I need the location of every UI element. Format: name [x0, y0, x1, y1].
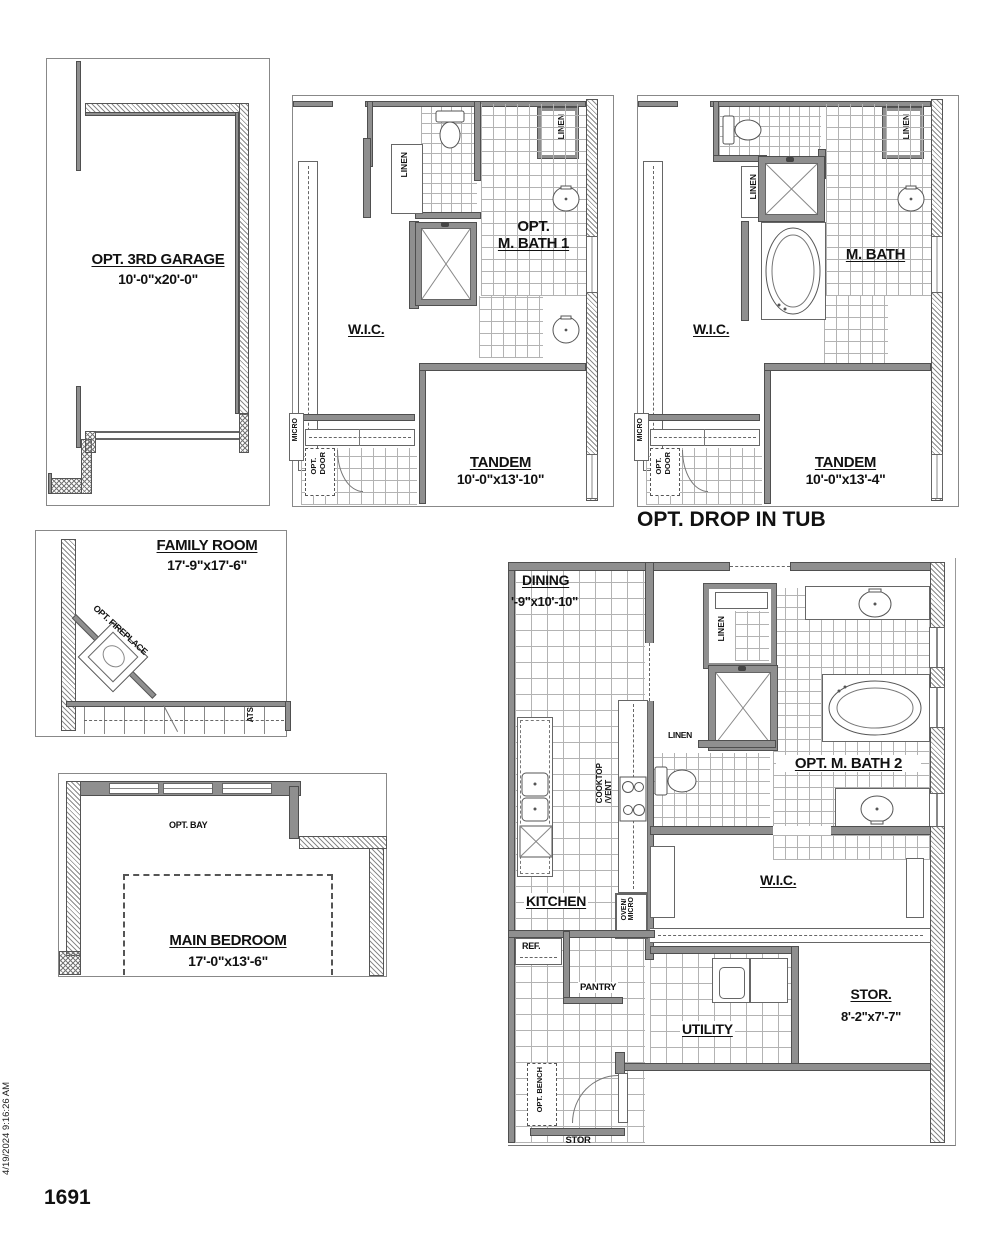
- plan-opt-3rd-garage: OPT. 3RD GARAGE 10'-0"x20'-0": [46, 58, 270, 506]
- door-leaf: [618, 1073, 628, 1123]
- wall: [615, 1052, 625, 1074]
- wall: [646, 414, 760, 421]
- wall: [563, 997, 623, 1004]
- wall: [293, 101, 333, 107]
- floor-plan-sheet: OPT. 3RD GARAGE 10'-0"x20'-0" LINEN LINE…: [0, 0, 1000, 1250]
- window: [929, 687, 945, 728]
- pantry-label: PANTRY: [578, 982, 618, 993]
- wall: [713, 101, 719, 161]
- exterior-wall-crosshatch: [59, 951, 81, 975]
- wall: [620, 1063, 931, 1071]
- wall: [650, 946, 798, 954]
- wall: [508, 562, 515, 1143]
- ref-label: REF.: [522, 941, 540, 951]
- toilet-icon: [434, 110, 466, 152]
- exterior-wall-hatch: [239, 103, 249, 415]
- garage-door-pier: [85, 431, 96, 453]
- opening: [773, 826, 831, 835]
- tub-icon: [765, 227, 822, 315]
- garage-title: OPT. 3RD GARAGE: [87, 251, 229, 268]
- bath1-title-line2: M. BATH 1: [481, 235, 586, 252]
- toilet-icon: [722, 114, 764, 146]
- exterior-wall-hatch: [586, 99, 598, 501]
- counter-centerline: [309, 437, 411, 438]
- linen-hall-label: LINEN: [666, 730, 694, 740]
- plan-family-room: FAMILY ROOM 17'-9"x17'-6" OPT. FIREPLACE…: [35, 530, 287, 737]
- closet-shelves: [650, 846, 675, 918]
- shelf-centerline: [653, 166, 654, 466]
- opening-dashed: [730, 566, 790, 567]
- counter-centerline: [654, 437, 756, 438]
- drop-in-tub-caption: OPT. DROP IN TUB: [637, 508, 826, 532]
- shower-x-icon: [715, 672, 771, 744]
- shower-x-icon: [421, 228, 471, 300]
- print-timestamp: 4/19/2024 9:16:26 AM: [1, 1082, 12, 1175]
- utility-label: UTILITY: [680, 1021, 735, 1037]
- wall: [48, 473, 52, 494]
- bath1-title: OPT. M. BATH 1: [481, 218, 586, 252]
- plan-m-bath-drop-in-tub: LINEN LINEN M. BATH W.I.C.: [637, 95, 959, 507]
- plan-main-area: DINING '-9"x10'-10" LINEN LINEN: [508, 558, 956, 1146]
- opt-door-label: OPT.DOOR: [309, 452, 327, 475]
- wall: [741, 221, 749, 321]
- washer-drum: [719, 967, 745, 999]
- wall: [790, 562, 931, 571]
- shower-x-icon: [765, 163, 818, 215]
- wall: [508, 562, 730, 571]
- bath2-title: OPT. M. BATH 2: [776, 755, 921, 772]
- dining-label: DINING: [522, 572, 569, 588]
- bath-floor: [479, 296, 543, 358]
- cooktop-label: COOKTOP/VENT: [595, 763, 613, 803]
- dishwasher-icon: [519, 825, 553, 858]
- wall: [474, 101, 481, 181]
- window: [931, 236, 943, 293]
- washer: [712, 958, 750, 1003]
- kitchen-label: KITCHEN: [524, 893, 588, 909]
- sink-icon: [896, 186, 926, 212]
- tandem-label: TANDEM 10'-0"x13'-4": [778, 454, 913, 487]
- wall: [415, 212, 481, 219]
- window: [929, 627, 945, 668]
- wall: [419, 363, 586, 371]
- exterior-wall-hatch: [66, 781, 81, 956]
- window: [109, 783, 159, 794]
- garage-door: [96, 431, 239, 440]
- bath1-title-line1: OPT.: [481, 218, 586, 235]
- wall: [76, 61, 81, 171]
- exterior-wall-crosshatch: [51, 478, 82, 494]
- wall: [235, 112, 239, 414]
- wic-label: W.I.C.: [760, 872, 796, 888]
- toilet-icon: [654, 764, 700, 798]
- cooktop-icon: [619, 776, 647, 822]
- dryer: [750, 958, 788, 1003]
- window: [929, 793, 945, 827]
- kitchen-sink-icon: [521, 772, 549, 822]
- linen-label: LINEN: [716, 616, 726, 642]
- oven-micro-label: OVEN/MICRO: [621, 897, 635, 920]
- sink-icon: [551, 186, 581, 212]
- shower-head-icon: [786, 157, 794, 162]
- closet-shelves: [906, 858, 924, 918]
- bedroom-title: MAIN BEDROOM: [157, 932, 299, 949]
- family-room-dims: 17'-9"x17'-6": [131, 557, 283, 573]
- wall: [791, 946, 799, 1068]
- sink-icon: [858, 794, 896, 824]
- window: [586, 454, 598, 499]
- garage-dims: 10'-0"x20'-0": [87, 271, 229, 287]
- wic-label: W.I.C.: [348, 321, 384, 337]
- shower-head-icon: [738, 666, 746, 671]
- wall: [285, 701, 291, 731]
- shelf-centerline: [308, 166, 309, 466]
- opt-bay-label: OPT. BAY: [169, 820, 207, 830]
- opt-door-label: OPT.DOOR: [654, 452, 672, 475]
- exterior-wall-crosshatch: [239, 413, 249, 453]
- wic-label: W.I.C.: [693, 321, 729, 337]
- bedroom-dims: 17'-0"x13'-6": [157, 953, 299, 969]
- window: [931, 454, 943, 499]
- counter-divider: [704, 429, 705, 446]
- wall: [85, 112, 241, 116]
- window: [163, 783, 213, 794]
- linen-label: LINEN: [748, 174, 758, 200]
- plan-main-bedroom: OPT. BAY MAIN BEDROOM 17'-0"x13'-6": [58, 773, 387, 977]
- linen-shelf: [715, 592, 768, 609]
- bath-floor: [824, 296, 888, 366]
- rod-centerline: [658, 935, 923, 936]
- shower-head-icon: [441, 222, 449, 227]
- stor-label: STOR.: [816, 986, 926, 1002]
- window: [586, 236, 598, 293]
- linen-label: LINEN: [399, 152, 409, 178]
- wall: [698, 740, 776, 748]
- wall: [419, 370, 426, 504]
- wall: [764, 370, 771, 504]
- dining-dims: '-9"x10'-10": [511, 594, 578, 609]
- wall: [301, 414, 415, 421]
- wall: [764, 363, 931, 371]
- wall: [289, 786, 299, 839]
- plan-opt-m-bath-1: LINEN LINEN OPT. M. BATH 1 W.I.C.: [292, 95, 614, 507]
- wall: [363, 138, 371, 218]
- opt-bench-label: OPT. BENCH: [535, 1067, 544, 1112]
- tandem-label: TANDEM 10'-0"x13'-10": [433, 454, 568, 487]
- sink-icon: [551, 316, 581, 344]
- micro-label: MICRO: [637, 418, 644, 441]
- window: [222, 783, 272, 794]
- stor-dims: 8'-2"x7'-7": [816, 1009, 926, 1024]
- family-room-title: FAMILY ROOM: [131, 537, 283, 554]
- exterior-wall-hatch: [369, 848, 384, 976]
- stairs-label: ATS: [246, 707, 255, 722]
- plan-number: 1691: [44, 1186, 91, 1210]
- wall: [563, 931, 570, 1004]
- bath-title: M. BATH: [823, 246, 928, 263]
- micro-label: MICRO: [292, 418, 299, 441]
- stor-small-label: STOR: [543, 1135, 613, 1146]
- linen-shelves: [735, 611, 769, 661]
- sink-icon: [856, 589, 894, 619]
- counter-divider: [359, 429, 360, 446]
- opening-dashed: [649, 643, 650, 701]
- ref-dashed: [520, 957, 557, 958]
- exterior-wall-hatch: [931, 99, 943, 501]
- wall: [638, 101, 678, 107]
- wall: [508, 930, 655, 938]
- tub-icon: [827, 679, 923, 737]
